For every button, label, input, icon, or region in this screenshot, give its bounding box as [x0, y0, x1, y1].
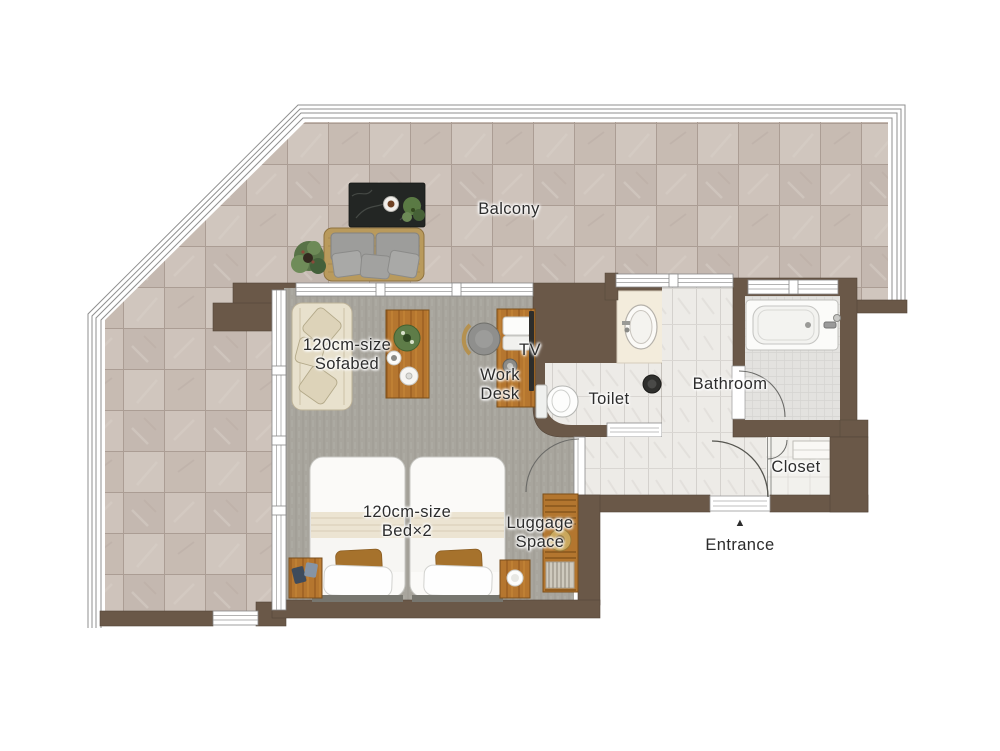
- faucet-icon: [622, 321, 630, 325]
- label-workdesk: Work Desk: [460, 366, 540, 404]
- floor-plan: Balcony 120cm-size Sofabed TV Work Desk …: [0, 0, 1000, 751]
- label-bathroom: Bathroom: [680, 375, 780, 394]
- outdoor-sofa: [324, 228, 424, 281]
- bathroom: [732, 278, 868, 437]
- window-balcony-gap: [213, 611, 258, 625]
- bedroom-bottom-wall: [272, 600, 600, 618]
- nightstand-right: [500, 560, 530, 598]
- label-balcony: Balcony: [449, 200, 569, 219]
- label-sofabed: 120cm-size Sofabed: [287, 336, 407, 374]
- label-tv: TV: [508, 341, 552, 360]
- label-toilet: Toilet: [569, 390, 649, 409]
- outdoor-table: [349, 183, 425, 227]
- nightstand-left: [289, 558, 322, 598]
- bathtub: [746, 300, 841, 350]
- corridor-floor: [662, 283, 733, 440]
- window-room-top: [296, 283, 533, 296]
- label-luggage: Luggage Space: [490, 514, 590, 552]
- label-beds: 120cm-size Bed×2: [347, 503, 467, 541]
- luggage-bag: [546, 562, 574, 588]
- entrance-marker-icon: ▲: [728, 517, 752, 530]
- label-entrance: Entrance: [690, 536, 790, 555]
- window-vanity: [616, 274, 733, 287]
- window-bathtub: [748, 280, 838, 294]
- desk-chair: [464, 323, 500, 355]
- label-closet: Closet: [756, 458, 836, 477]
- window-room-left: [272, 290, 286, 610]
